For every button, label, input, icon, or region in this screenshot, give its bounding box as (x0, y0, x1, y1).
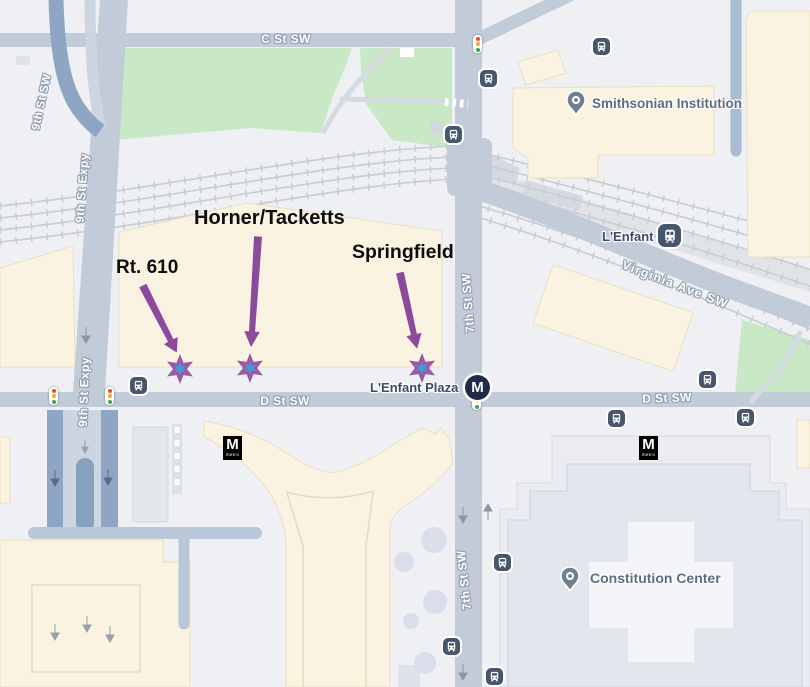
street-label-c-st: C St SW (255, 32, 317, 46)
bus-stop-icon[interactable] (130, 377, 147, 394)
poi-label-constitution-center[interactable]: Constitution Center (590, 570, 721, 586)
bus-stop-icon[interactable] (608, 410, 625, 427)
metro-logo-west: M metro (223, 436, 242, 460)
trees (394, 527, 447, 674)
lenfant-plaza-metro-m-icon[interactable]: M (465, 375, 490, 400)
bus-stop-icon[interactable] (443, 638, 460, 655)
constitution-pin-icon[interactable] (559, 566, 581, 598)
annotation-label-rt-610: Rt. 610 (116, 257, 178, 279)
street-label-d-st-west: D St SW (254, 394, 316, 408)
station-label-lenfant-plaza[interactable]: L'Enfant Plaza (370, 380, 458, 395)
bus-stop-icon[interactable] (494, 554, 511, 571)
street-label-d-st-east: D St SW (636, 390, 698, 406)
bus-stop-icon[interactable] (445, 126, 462, 143)
street-label-9th-expy-south: 9th St Expy (76, 357, 92, 427)
lenfant-train-station-icon[interactable] (658, 224, 681, 247)
metro-logo-east: M metro (639, 436, 658, 460)
traffic-light-icon-9th-d-west (49, 387, 58, 405)
bus-stop-icon[interactable] (480, 70, 497, 87)
bus-stop-icon[interactable] (593, 38, 610, 55)
annotation-label-horner-tacketts: Horner/Tacketts (194, 207, 345, 230)
constitution-center-block (500, 436, 810, 687)
annotation-label-springfield: Springfield (352, 241, 454, 264)
map-viewport[interactable]: C St SW D St SW D St SW 7th St SW 7th St… (0, 0, 810, 687)
metro-logo-wordmark: metro (639, 453, 658, 458)
bus-stop-icon[interactable] (486, 668, 503, 685)
smithsonian-pin-icon[interactable] (565, 90, 587, 122)
metro-logo-m: M (639, 437, 658, 452)
traffic-light-icon-9th-d-east (105, 387, 114, 405)
poi-label-smithsonian[interactable]: Smithsonian Institution (592, 96, 742, 111)
metro-logo-wordmark: metro (223, 453, 242, 458)
bus-stop-icon[interactable] (699, 371, 716, 388)
station-label-lenfant[interactable]: L'Enfant (602, 229, 653, 244)
metro-logo-m: M (223, 437, 242, 452)
bus-stop-icon[interactable] (737, 409, 754, 426)
traffic-light-icon-7th-c (473, 35, 482, 53)
